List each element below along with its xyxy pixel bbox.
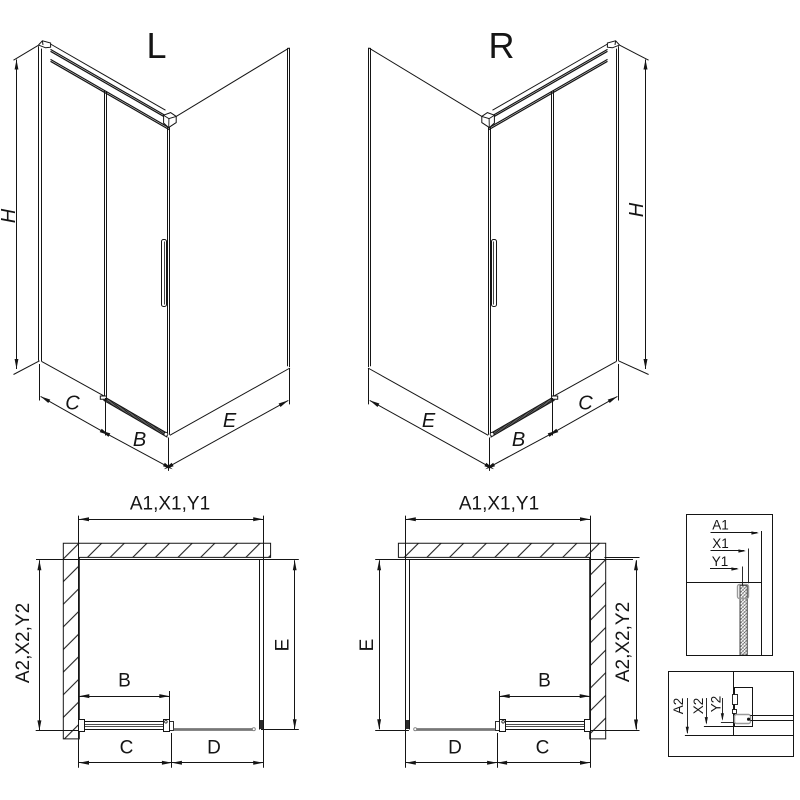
svg-text:A2,X2,Y2: A2,X2,Y2 [613,602,634,682]
svg-text:Y1: Y1 [712,554,729,569]
svg-text:C: C [536,738,550,759]
svg-text:H: H [626,202,648,217]
svg-text:L: L [146,25,166,66]
svg-text:B: B [133,429,146,451]
svg-text:X2: X2 [691,698,706,715]
svg-text:E: E [273,639,294,652]
svg-text:E: E [357,639,378,652]
svg-text:C: C [120,738,134,759]
svg-text:R: R [489,25,515,66]
svg-text:D: D [207,738,221,759]
svg-text:B: B [538,671,551,692]
svg-text:C: C [578,392,593,414]
svg-text:A1,X1,Y1: A1,X1,Y1 [459,494,539,515]
svg-text:A2,X2,Y2: A2,X2,Y2 [13,603,34,683]
svg-text:H: H [0,208,20,223]
svg-text:A1: A1 [712,518,729,533]
svg-text:D: D [448,738,462,759]
svg-text:Y2: Y2 [709,696,724,713]
svg-text:B: B [118,671,131,692]
svg-text:C: C [65,392,80,414]
svg-text:E: E [223,410,237,432]
svg-text:A1,X1,Y1: A1,X1,Y1 [130,494,210,515]
svg-text:E: E [422,410,436,432]
svg-text:X1: X1 [712,536,729,551]
svg-text:A2: A2 [671,698,686,715]
svg-text:B: B [512,429,525,451]
